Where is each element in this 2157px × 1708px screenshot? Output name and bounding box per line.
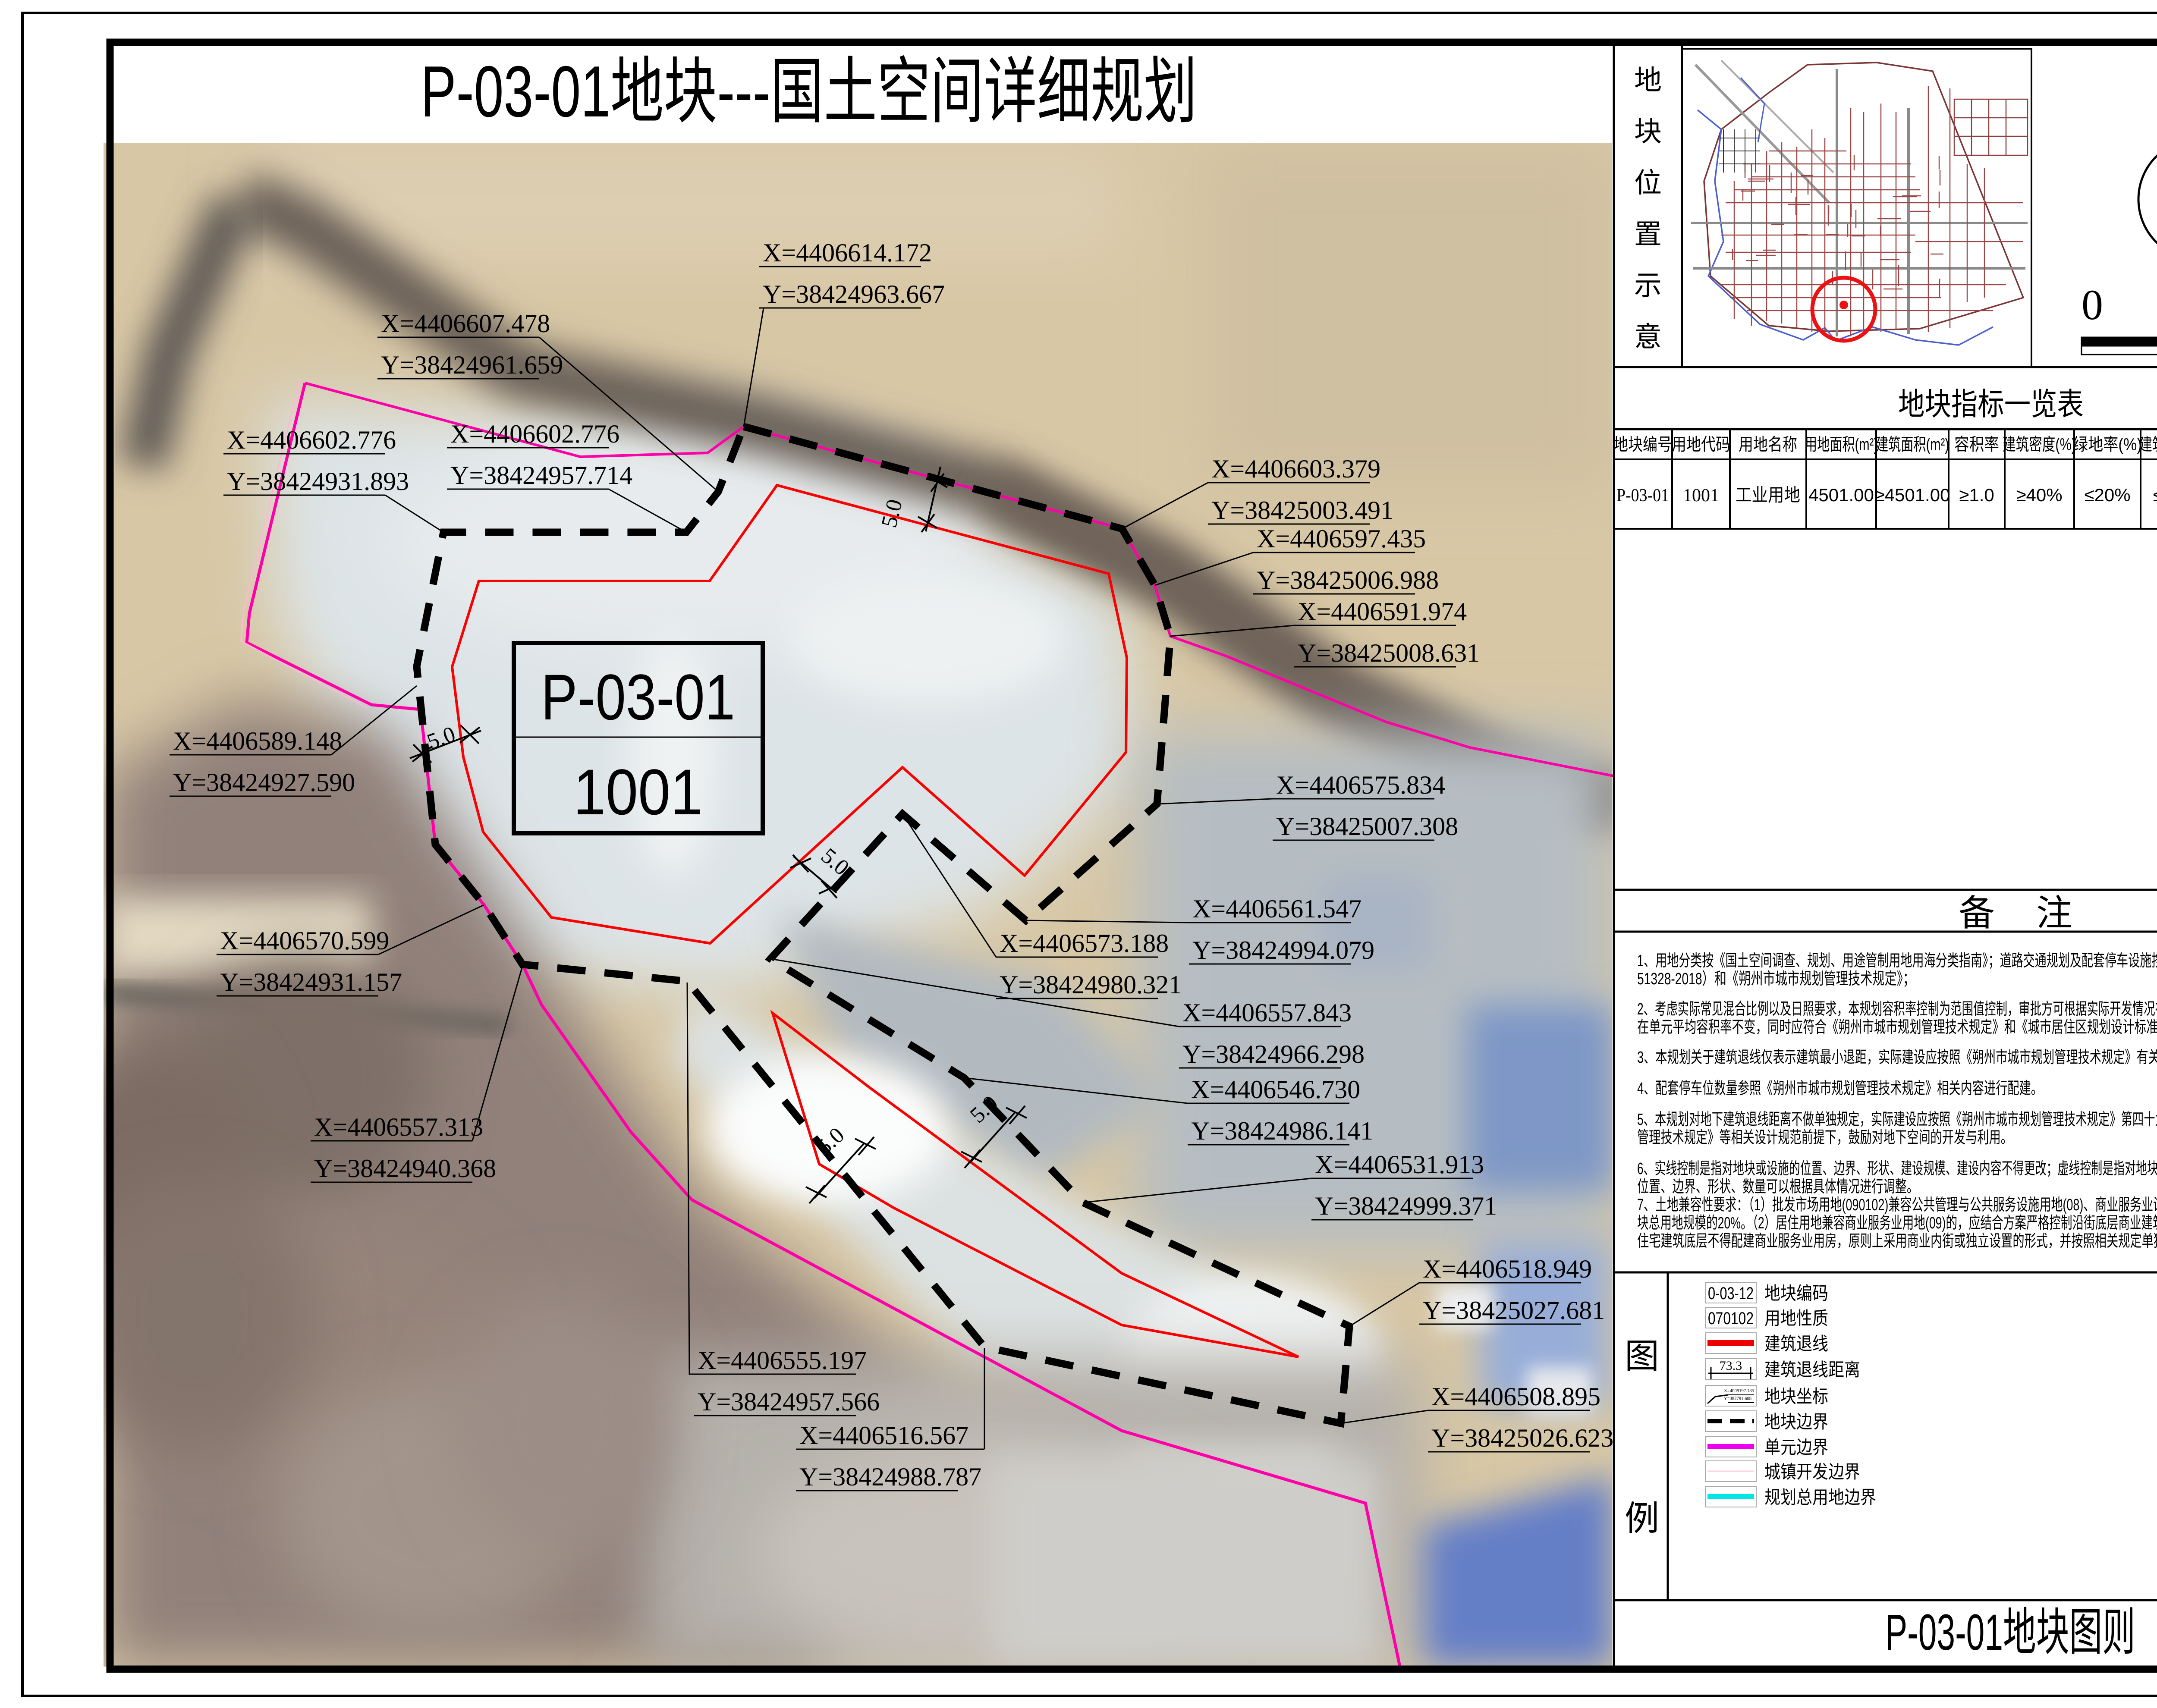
- svg-text:Y=38424963.667: Y=38424963.667: [763, 280, 945, 308]
- svg-text:建筑退线: 建筑退线: [1764, 1334, 1828, 1354]
- svg-text:住宅建筑底层不得配建商业服务业用房，原则上采用商业内街或独立: 住宅建筑底层不得配建商业服务业用房，原则上采用商业内街或独立设置的形式，并按照相…: [1637, 1232, 2157, 1250]
- svg-text:Y=38425006.988: Y=38425006.988: [1257, 566, 1439, 594]
- svg-text:地块指标一览表: 地块指标一览表: [1898, 387, 2084, 422]
- svg-text:Y=38425026.623: Y=38425026.623: [1431, 1424, 1613, 1452]
- svg-text:X=4406516.567: X=4406516.567: [799, 1421, 968, 1450]
- svg-text:X=4406597.435: X=4406597.435: [1257, 524, 1426, 553]
- svg-text:块总用地规模的20%。（2）居住用地兼容商业服务业用地(09: 块总用地规模的20%。（2）居住用地兼容商业服务业用地(09)的，应结合方案严格…: [1637, 1214, 2157, 1232]
- svg-text:示: 示: [1634, 270, 1662, 301]
- svg-text:城镇开发边界: 城镇开发边界: [1764, 1462, 1860, 1482]
- svg-text:Y=38425008.631: Y=38425008.631: [1298, 639, 1480, 667]
- svg-text:规划总用地边界: 规划总用地边界: [1764, 1487, 1876, 1507]
- svg-text:Y=382791.608: Y=382791.608: [1724, 1395, 1751, 1401]
- svg-text:在单元平均容积率不变，同时应符合《朔州市城市规划管理技术规定: 在单元平均容积率不变，同时应符合《朔州市城市规划管理技术规定》和《城市居住区规划…: [1637, 1018, 2157, 1036]
- svg-text:X=4406555.197: X=4406555.197: [698, 1346, 867, 1375]
- svg-text:Y=38424986.141: Y=38424986.141: [1191, 1117, 1373, 1145]
- svg-text:容积率: 容积率: [1954, 435, 1999, 454]
- svg-text:位: 位: [1634, 167, 1662, 198]
- svg-text:建筑面积(m²): 建筑面积(m²): [1876, 435, 1949, 454]
- svg-text:X=4406570.599: X=4406570.599: [220, 926, 389, 955]
- svg-text:意: 意: [1634, 321, 1662, 352]
- svg-text:工业用地: 工业用地: [1736, 485, 1800, 505]
- svg-text:绿地率(%): 绿地率(%): [2073, 435, 2142, 454]
- svg-text:Y=38425003.491: Y=38425003.491: [1211, 496, 1393, 524]
- svg-text:≥4501.00: ≥4501.00: [1875, 485, 1950, 505]
- svg-text:地块编号: 地块编号: [1613, 435, 1672, 454]
- svg-text:地: 地: [1634, 65, 1662, 96]
- svg-text:管理技术规定》等相关设计规范前提下，鼓励对地下空间的开发与利: 管理技术规定》等相关设计规范前提下，鼓励对地下空间的开发与利用。: [1637, 1129, 2012, 1147]
- svg-text:1、用地分类按《国土空间调查、规划、用途管制用地用海分类指南: 1、用地分类按《国土空间调查、规划、用途管制用地用海分类指南》；道路交通规划及配…: [1637, 952, 2157, 970]
- svg-text:X=4406602.776: X=4406602.776: [227, 426, 396, 454]
- svg-text:070102: 070102: [1708, 1309, 1754, 1328]
- svg-text:X=4406531.913: X=4406531.913: [1315, 1150, 1484, 1179]
- svg-text:7、土地兼容性要求：（1）批发市场用地(090102)兼容公: 7、土地兼容性要求：（1）批发市场用地(090102)兼容公共管理与公共服务设施…: [1637, 1196, 2157, 1214]
- svg-text:位置、边界、形状、数量可以根据具体情况进行调整。: 位置、边界、形状、数量可以根据具体情况进行调整。: [1637, 1178, 1918, 1196]
- svg-text:X=4406557.843: X=4406557.843: [1182, 998, 1352, 1027]
- svg-text:1001: 1001: [1683, 486, 1719, 505]
- svg-text:建筑限高(m): 建筑限高(m): [2139, 435, 2157, 454]
- svg-text:4、配套停车位数量参照《朔州市城市规划管理技术规定》相关内容: 4、配套停车位数量参照《朔州市城市规划管理技术规定》相关内容进行配建。: [1637, 1080, 2043, 1098]
- svg-text:≤20%: ≤20%: [2084, 485, 2130, 505]
- svg-text:Y=38425007.308: Y=38425007.308: [1276, 812, 1458, 841]
- svg-text:X=4406602.776: X=4406602.776: [450, 420, 619, 448]
- svg-text:用地性质: 用地性质: [1764, 1308, 1828, 1328]
- svg-text:X=4406508.895: X=4406508.895: [1431, 1382, 1600, 1411]
- svg-text:Y=38424994.079: Y=38424994.079: [1192, 936, 1374, 964]
- svg-text:X=4406561.547: X=4406561.547: [1192, 895, 1361, 923]
- svg-text:例: 例: [1625, 1499, 1659, 1538]
- svg-text:单元边界: 单元边界: [1764, 1437, 1828, 1457]
- svg-text:Y=38424957.566: Y=38424957.566: [698, 1388, 880, 1416]
- svg-text:X=4406589.148: X=4406589.148: [173, 727, 342, 755]
- svg-text:用地面积(m²): 用地面积(m²): [1805, 435, 1878, 454]
- svg-text:X=4406607.478: X=4406607.478: [381, 309, 550, 338]
- svg-text:X=4009197.135: X=4009197.135: [1724, 1388, 1754, 1394]
- svg-text:Y=38425027.681: Y=38425027.681: [1423, 1296, 1605, 1325]
- svg-text:1001: 1001: [573, 756, 703, 828]
- svg-text:Y=38424966.298: Y=38424966.298: [1182, 1040, 1365, 1068]
- svg-text:6、实线控制是指对地块或设施的位置、边界、形状、建设规模、建: 6、实线控制是指对地块或设施的位置、边界、形状、建设规模、建设内容不得更改；虚线…: [1637, 1160, 2157, 1178]
- svg-text:X=4406546.730: X=4406546.730: [1191, 1075, 1360, 1104]
- svg-text:2、考虑实际常见混合比例以及日照要求，本规划容积率控制为范围: 2、考虑实际常见混合比例以及日照要求，本规划容积率控制为范围值控制，审批方可根据…: [1637, 1000, 2157, 1018]
- svg-text:P-03-01: P-03-01: [1616, 486, 1669, 505]
- svg-text:用地名称: 用地名称: [1739, 435, 1797, 454]
- svg-text:建筑密度(%): 建筑密度(%): [2003, 435, 2076, 454]
- svg-text:Y=38424961.659: Y=38424961.659: [381, 351, 563, 379]
- svg-text:Y=38424988.787: Y=38424988.787: [799, 1463, 981, 1491]
- svg-text:X=4406518.949: X=4406518.949: [1423, 1255, 1592, 1283]
- svg-text:地块边界: 地块边界: [1764, 1412, 1828, 1432]
- svg-text:注: 注: [2036, 893, 2072, 933]
- svg-text:建筑退线距离: 建筑退线距离: [1764, 1359, 1860, 1380]
- svg-text:Y=38424940.368: Y=38424940.368: [314, 1154, 496, 1183]
- svg-text:Y=38424927.590: Y=38424927.590: [173, 768, 355, 797]
- svg-text:块: 块: [1634, 116, 1662, 147]
- svg-text:P-03-01地块图则: P-03-01地块图则: [1885, 1604, 2135, 1661]
- svg-text:X=4406603.379: X=4406603.379: [1211, 455, 1380, 483]
- svg-text:X=4406575.834: X=4406575.834: [1276, 771, 1445, 799]
- svg-text:0-03-12: 0-03-12: [1708, 1284, 1754, 1303]
- svg-text:X=4406573.188: X=4406573.188: [1000, 929, 1169, 958]
- svg-text:X=4406557.313: X=4406557.313: [314, 1113, 483, 1141]
- svg-text:用地代码: 用地代码: [1672, 435, 1730, 454]
- svg-text:Y=38424999.371: Y=38424999.371: [1315, 1192, 1497, 1220]
- svg-text:备: 备: [1959, 893, 1995, 933]
- svg-text:Y=38424957.714: Y=38424957.714: [450, 461, 632, 490]
- svg-text:0: 0: [2082, 281, 2103, 329]
- svg-text:P-03-01: P-03-01: [541, 661, 735, 733]
- svg-text:51328-2018）和《朔州市城市规划管理技术规定》；: 51328-2018）和《朔州市城市规划管理技术规定》；: [1637, 970, 1915, 988]
- svg-text:Y=38424931.157: Y=38424931.157: [220, 968, 402, 996]
- svg-text:4501.00: 4501.00: [1808, 485, 1874, 505]
- svg-text:X=4406614.172: X=4406614.172: [763, 239, 932, 267]
- svg-text:Y=38424980.321: Y=38424980.321: [1000, 970, 1182, 999]
- svg-text:5、本规划对地下建筑退线距离不做单独规定，实际建设应按照《朔: 5、本规划对地下建筑退线距离不做单独规定，实际建设应按照《朔州市城市规划管理技术…: [1637, 1111, 2157, 1129]
- svg-text:置: 置: [1634, 219, 1662, 250]
- svg-text:73.3: 73.3: [1720, 1359, 1742, 1373]
- svg-text:3、本规划关于建筑退线仅表示建筑最小退距，实际建设应按照《朔: 3、本规划关于建筑退线仅表示建筑最小退距，实际建设应按照《朔州市城市规划管理技术…: [1637, 1049, 2157, 1067]
- svg-text:≥40%: ≥40%: [2016, 485, 2062, 505]
- svg-text:地块坐标: 地块坐标: [1764, 1386, 1828, 1407]
- svg-text:P-03-01地块---国土空间详细规划: P-03-01地块---国土空间详细规划: [421, 51, 1197, 132]
- svg-text:≥1.0: ≥1.0: [1959, 485, 1994, 505]
- svg-text:图: 图: [1625, 1337, 1659, 1375]
- svg-text:Y=38424931.893: Y=38424931.893: [227, 467, 409, 496]
- svg-text:地块编码: 地块编码: [1764, 1283, 1828, 1303]
- svg-text:X=4406591.974: X=4406591.974: [1298, 597, 1467, 626]
- svg-text:≤12m: ≤12m: [2153, 485, 2157, 505]
